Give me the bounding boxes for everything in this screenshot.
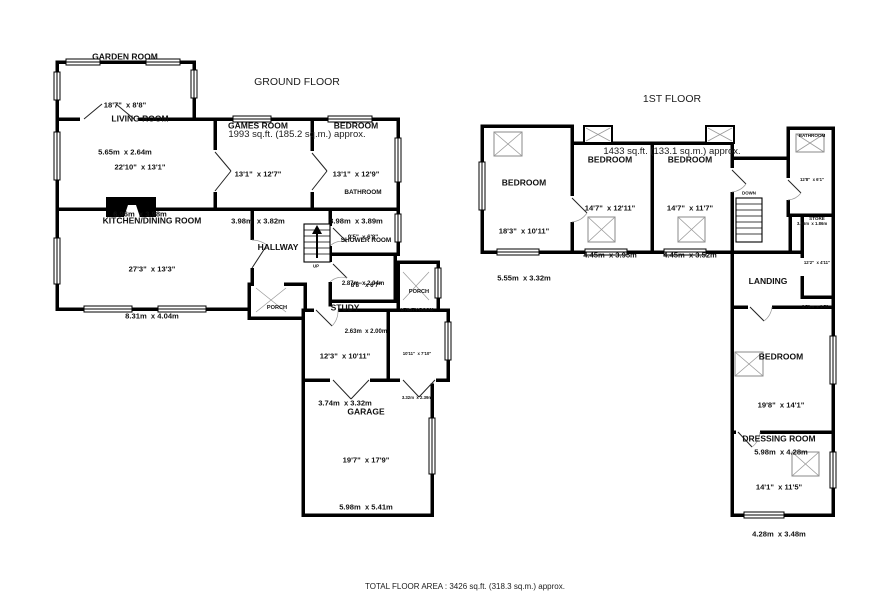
room-name: STUDY — [318, 303, 372, 313]
window — [479, 162, 485, 210]
window — [445, 322, 451, 360]
window — [429, 418, 435, 474]
room-name: BATHROOM — [342, 189, 384, 197]
room-name: GARAGE — [339, 407, 393, 417]
room-name: BEDROOM — [754, 352, 808, 362]
stairs-down-label: DOWN — [742, 190, 756, 195]
room-name: BATHROOM — [797, 133, 827, 139]
room-label-garage: GARAGE 19'7" x 17'9" 5.98m x 5.41m — [339, 369, 393, 532]
room-label-utility-room: UTILITY ROOM 10'11" x 7'10" 3.32m x 2.39… — [401, 269, 434, 419]
room-label-bedroom-3: BEDROOM 14'7" x 11'7" 4.45m x 3.52m — [663, 117, 717, 280]
room-name: BEDROOM — [329, 121, 383, 131]
window — [191, 70, 197, 98]
room-name: GAMES ROOM — [228, 121, 288, 131]
room-label-hallway: HALLWAY — [258, 204, 299, 272]
room-dims-imperial: 10'11" x 7'10" — [401, 351, 434, 356]
room-name: GARDEN ROOM — [92, 52, 158, 62]
floor-title: 1ST FLOOR — [603, 93, 740, 106]
stairs-down — [736, 198, 762, 242]
room-name: BEDROOM — [497, 178, 551, 188]
room-dims-metric: 5.98m x 5.41m — [339, 503, 393, 512]
room-dims-metric: 8.31m x 4.04m — [103, 312, 202, 321]
room-dims-imperial: 14'7" x 11'7" — [663, 204, 717, 213]
room-name: PORCH — [267, 305, 287, 312]
room-name: BEDROOM — [663, 155, 717, 165]
room-label-porch-left: PORCH — [267, 267, 287, 331]
window — [54, 238, 60, 284]
window — [435, 268, 441, 298]
room-label-dressing-room: DRESSING ROOM 14'1" x 11'5" 4.28m x 3.48… — [742, 396, 815, 559]
room-dims-metric: 4.45m x 3.52m — [663, 251, 717, 260]
room-dims-metric: 5.55m x 3.32m — [497, 274, 551, 283]
room-name: SHOWER ROOM — [341, 237, 391, 245]
room-dims-imperial: 13'1" x 12'7" — [228, 170, 288, 179]
room-dims-imperial: 12'3" x 10'11" — [318, 352, 372, 361]
room-dims-imperial: 27'3" x 13'3" — [103, 265, 202, 274]
window — [830, 336, 836, 384]
room-name: LANDING — [749, 277, 788, 287]
stairs-up — [304, 224, 330, 262]
room-label-bedroom-2: BEDROOM 14'7" x 12'11" 4.45m x 3.95m — [583, 117, 637, 280]
window — [395, 138, 401, 182]
room-dims-imperial: 12'2" x 4'11" — [802, 260, 832, 265]
window — [54, 72, 60, 100]
footer: TOTAL FLOOR AREA : 3426 sq.ft. (318.3 sq… — [365, 546, 565, 609]
stairs-up-label: UP — [313, 263, 319, 268]
total-floor-area: TOTAL FLOOR AREA : 3426 sq.ft. (318.3 sq… — [365, 582, 565, 591]
window — [395, 214, 401, 242]
window — [830, 452, 836, 488]
room-dims-imperial: 14'7" x 12'11" — [583, 204, 637, 213]
room-name: DRESSING ROOM — [742, 434, 815, 444]
room-dims-imperial: 22'10" x 13'1" — [111, 163, 168, 172]
room-dims-imperial: 18'3" x 10'11" — [497, 227, 551, 236]
room-name: HALLWAY — [258, 243, 299, 253]
room-name: KITCHEN/DINING ROOM — [103, 216, 202, 226]
room-dims-metric: 3.32m x 2.39m — [401, 395, 434, 400]
window — [54, 132, 60, 180]
room-dims-metric: 3.72m x 1.50m — [802, 304, 832, 309]
room-dims-metric: 4.28m x 3.48m — [742, 530, 815, 539]
room-label-bedroom-1: BEDROOM 18'3" x 10'11" 5.55m x 3.32m — [497, 140, 551, 303]
room-label-store: STORE 12'2" x 4'11" 3.72m x 1.50m — [802, 178, 832, 328]
room-name: BEDROOM — [583, 155, 637, 165]
room-dims-imperial: 14'1" x 11'5" — [742, 483, 815, 492]
room-name: UTILITY ROOM — [401, 307, 434, 313]
room-dims-metric: 4.45m x 3.95m — [583, 251, 637, 260]
room-label-landing: LANDING — [749, 238, 788, 306]
room-dims-imperial: 19'7" x 17'9" — [339, 456, 393, 465]
room-name: STORE — [802, 216, 832, 222]
room-name: LIVING ROOM — [111, 114, 168, 124]
floorplan-page: GROUND FLOOR 1993 sq.ft. (185.2 sq.m.) a… — [0, 0, 886, 609]
room-label-kitchen-dining: KITCHEN/DINING ROOM 27'3" x 13'3" 8.31m … — [103, 178, 202, 341]
